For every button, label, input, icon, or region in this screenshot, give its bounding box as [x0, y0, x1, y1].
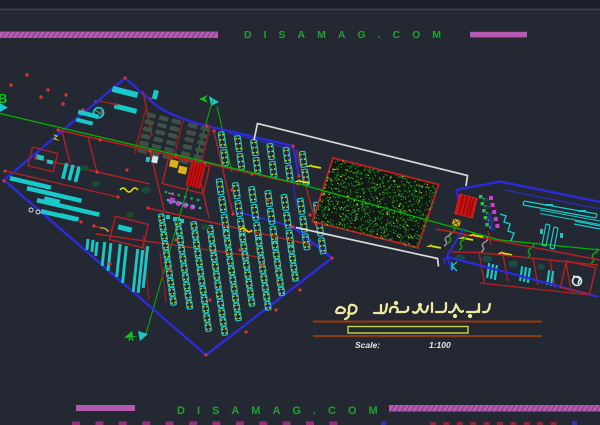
svg-text:DISAMAG.COM: DISAMAG.COM: [244, 29, 453, 41]
svg-text:1:100: 1:100: [429, 340, 451, 350]
svg-text:DISAMAG.COM: DISAMAG.COM: [177, 405, 390, 417]
svg-text:Scale:: Scale:: [355, 340, 380, 350]
svg-text:A: A: [128, 334, 134, 343]
